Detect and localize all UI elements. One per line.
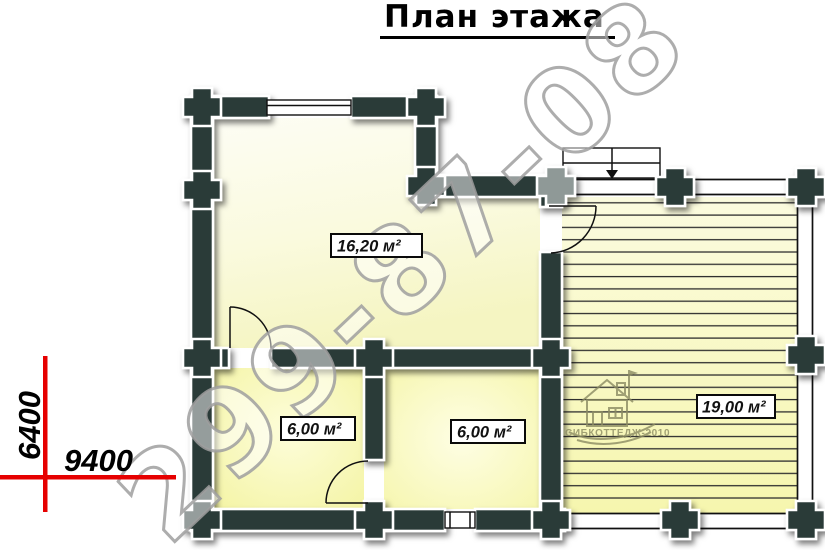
dimension-width-label: 9400 <box>64 443 133 478</box>
floor-plan-drawing: СИБКОТТЕДЖ-2010 299-87-08 16,20 м² 6,00 … <box>0 0 825 550</box>
logo-text: СИБКОТТЕДЖ-2010 <box>565 428 670 439</box>
window-bottom <box>445 512 475 528</box>
terrace-decking-hatch <box>562 200 797 509</box>
area-label-terrace: 19,00 м² <box>697 395 775 418</box>
svg-text:16,20 м²: 16,20 м² <box>337 238 401 256</box>
wall-segment <box>540 252 562 531</box>
dimension-height-label: 6400 <box>12 391 47 460</box>
area-label-main-room: 16,20 м² <box>331 234 422 257</box>
svg-text:19,00 м²: 19,00 м² <box>702 399 766 417</box>
floor-plan-page: План этажа <box>0 0 825 550</box>
svg-text:6,00 м²: 6,00 м² <box>457 424 512 442</box>
area-label-room-bottom-left: 6,00 м² <box>281 417 355 440</box>
window-top <box>267 100 351 115</box>
area-label-room-bottom-middle: 6,00 м² <box>451 420 525 443</box>
svg-text:6,00 м²: 6,00 м² <box>287 421 342 439</box>
